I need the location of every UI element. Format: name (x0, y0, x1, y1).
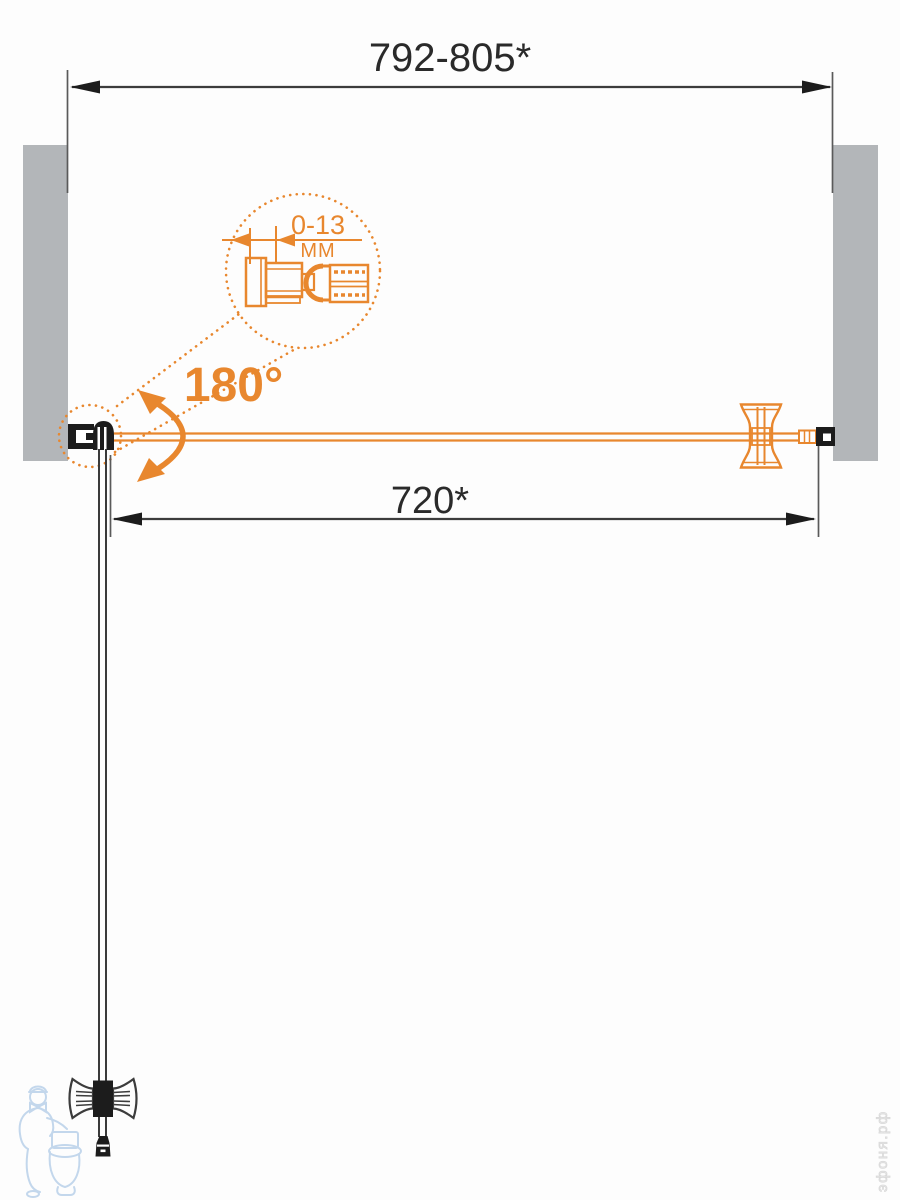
wall-profile-hinge (68, 421, 114, 450)
left-wall (23, 145, 68, 461)
door-width-dimension-label: 720* (330, 482, 530, 520)
right-wall-bracket (816, 427, 835, 446)
door-handle (70, 1079, 137, 1118)
adjustment-unit-label: MM (283, 241, 353, 261)
site-watermark: эфоня.рф (874, 1082, 891, 1192)
diagram-linework (0, 0, 900, 1200)
bottom-seal (96, 1136, 111, 1157)
adjustment-range-label: 0-13 (283, 212, 353, 239)
towel-holder (741, 405, 781, 468)
door-panel-closed (113, 434, 800, 441)
wall-profile-detail (246, 258, 368, 306)
opening-width-dimension-label: 792-805* (300, 38, 600, 78)
opening-width-dimension (68, 70, 833, 193)
shower-door-plan-diagram: 792-805* 720* 0-13 MM 180° эфоня.рф (0, 0, 900, 1200)
right-wall (833, 145, 878, 461)
door-panel-open (99, 449, 106, 1137)
swing-angle-label: 180° (176, 362, 291, 410)
door-end-profile (799, 431, 816, 444)
plumber-watermark-icon (20, 1087, 81, 1198)
